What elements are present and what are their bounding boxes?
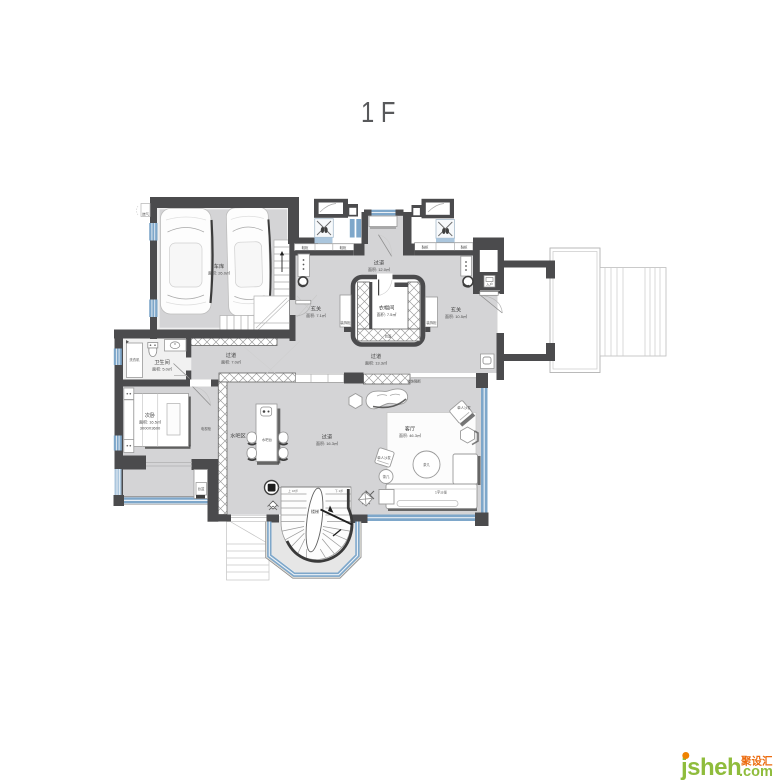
svg-text:单人沙发: 单人沙发 bbox=[457, 405, 471, 410]
svg-text:入户: 入户 bbox=[486, 282, 493, 287]
svg-text:面积: 26.0㎡: 面积: 26.0㎡ bbox=[208, 270, 230, 276]
svg-text:燃气: 燃气 bbox=[142, 212, 149, 217]
svg-text:电视柜: 电视柜 bbox=[201, 426, 212, 431]
svg-text:装饰隔断: 装饰隔断 bbox=[407, 379, 421, 384]
svg-text:面积: 7.0㎡: 面积: 7.0㎡ bbox=[221, 359, 241, 365]
svg-text:面积: 5.0㎡: 面积: 5.0㎡ bbox=[152, 366, 172, 372]
svg-text:1字沙发: 1字沙发 bbox=[435, 490, 448, 495]
svg-text:下 2步: 下 2步 bbox=[335, 488, 344, 493]
svg-text:车库: 车库 bbox=[214, 262, 224, 270]
svg-text:面积: 13.3㎡: 面积: 13.3㎡ bbox=[365, 360, 387, 366]
svg-text:洗衣机: 洗衣机 bbox=[129, 357, 140, 362]
svg-text:茶几: 茶几 bbox=[423, 462, 430, 467]
svg-text:.com: .com bbox=[739, 764, 773, 780]
svg-text:面积: 16.5㎡: 面积: 16.5㎡ bbox=[139, 419, 161, 425]
svg-text:鞋柜: 鞋柜 bbox=[302, 245, 309, 250]
svg-text:上 18步: 上 18步 bbox=[288, 488, 298, 493]
svg-text:水吧区: 水吧区 bbox=[230, 432, 246, 440]
svg-text:玄关: 玄关 bbox=[311, 305, 321, 313]
svg-text:1 F: 1 F bbox=[361, 96, 395, 129]
svg-text:装饰柜: 装饰柜 bbox=[340, 320, 351, 325]
svg-text:面积: 12.0㎡: 面积: 12.0㎡ bbox=[368, 266, 390, 272]
svg-text:次卧: 次卧 bbox=[145, 411, 155, 419]
svg-text:鞋柜: 鞋柜 bbox=[461, 244, 468, 249]
svg-text:衣帽间: 衣帽间 bbox=[379, 304, 395, 312]
svg-text:过道: 过道 bbox=[371, 352, 381, 360]
svg-text:面积: 10.5㎡: 面积: 10.5㎡ bbox=[445, 313, 467, 319]
svg-text:面积: 16.3㎡: 面积: 16.3㎡ bbox=[316, 440, 338, 446]
svg-text:面积: 7.1㎡: 面积: 7.1㎡ bbox=[306, 312, 326, 318]
svg-text:jsheh: jsheh bbox=[680, 754, 741, 780]
svg-text:单人沙发: 单人沙发 bbox=[377, 455, 391, 460]
svg-text:3000X3600: 3000X3600 bbox=[140, 426, 161, 431]
svg-text:客厅: 客厅 bbox=[405, 425, 415, 433]
svg-text:水吧台: 水吧台 bbox=[262, 437, 273, 442]
svg-text:面积: 46.3㎡: 面积: 46.3㎡ bbox=[399, 432, 421, 438]
svg-text:过道: 过道 bbox=[374, 259, 384, 267]
svg-text:楼梯: 楼梯 bbox=[311, 508, 319, 514]
svg-text:台盆: 台盆 bbox=[198, 486, 205, 491]
svg-text:过道: 过道 bbox=[322, 433, 332, 441]
svg-text:茶几: 茶几 bbox=[383, 474, 390, 479]
svg-text:面积: 7.5㎡: 面积: 7.5㎡ bbox=[377, 311, 397, 317]
svg-text:鞋柜: 鞋柜 bbox=[422, 244, 429, 249]
svg-text:鞋柜: 鞋柜 bbox=[340, 245, 347, 250]
svg-text:装饰柜: 装饰柜 bbox=[426, 320, 437, 325]
svg-text:卫生间: 卫生间 bbox=[154, 358, 170, 366]
svg-text:玄关: 玄关 bbox=[451, 306, 461, 314]
svg-text:台面: 台面 bbox=[385, 334, 392, 339]
svg-text:过道: 过道 bbox=[226, 351, 236, 359]
